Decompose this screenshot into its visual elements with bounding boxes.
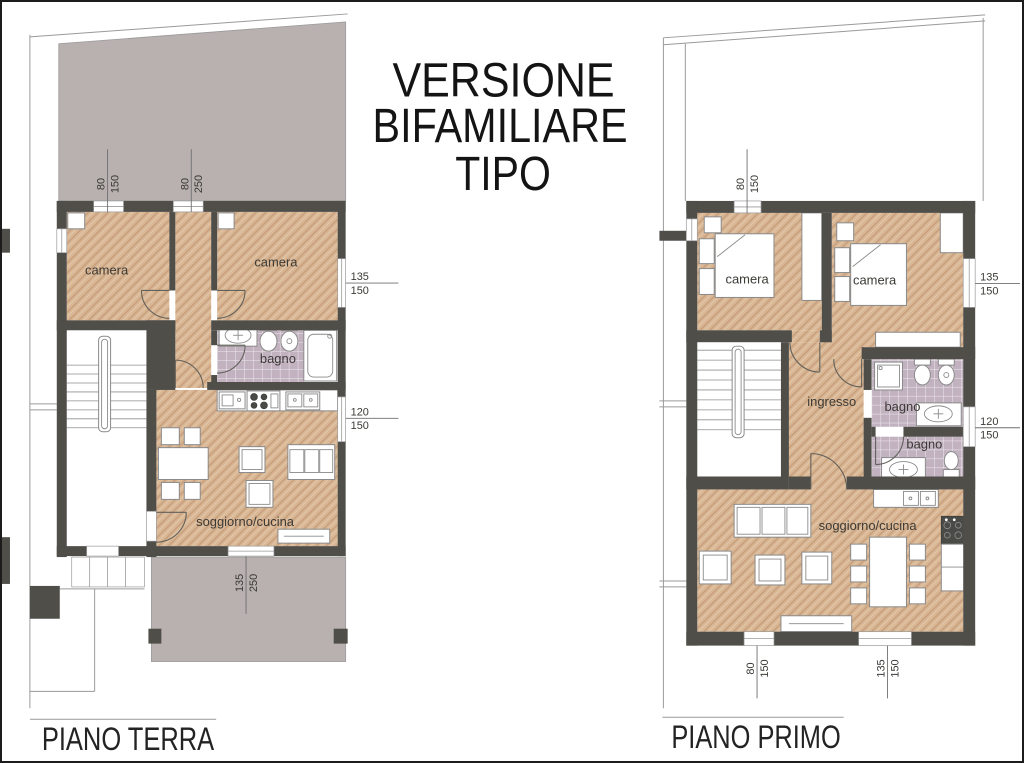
plan-label-piano-primo: PIANO PRIMO: [671, 718, 840, 755]
dimension-value: 150: [351, 285, 369, 297]
sink-icon: [916, 403, 961, 426]
dimension-value: 150: [110, 175, 122, 193]
dimension-value: 150: [749, 175, 761, 193]
dimension-value: 250: [193, 175, 205, 193]
nightstand-icon: [837, 223, 854, 241]
window: [338, 259, 346, 308]
title-block: VERSIONE BIFAMILIARE TIPO: [373, 55, 628, 201]
dimension: 120 150: [975, 416, 1020, 442]
kitchen-counter: [217, 390, 338, 411]
toilet-icon: [943, 452, 959, 478]
room-label-soggiorno: soggiorno/cucina: [196, 514, 295, 529]
neighbour-wall-stubs: [2, 229, 60, 619]
bidet-icon: [938, 359, 954, 385]
window: [859, 632, 912, 646]
sheet-title-line3: TIPO: [455, 148, 551, 201]
room-label-camera1: camera: [85, 263, 129, 278]
kitchen-counter: [941, 544, 965, 591]
dimension-value: 135: [980, 272, 998, 284]
dimension-value: 150: [889, 659, 901, 677]
terrace-top: [59, 22, 346, 201]
dimension-value: 150: [351, 420, 369, 432]
terrace-door: [228, 546, 274, 556]
dimension-value: 150: [980, 285, 998, 297]
tv-bench-icon: [781, 616, 852, 632]
dimension-value: 250: [248, 574, 260, 592]
armchair-icon: [755, 555, 785, 585]
armchair-icon: [246, 480, 273, 507]
window: [744, 632, 774, 646]
window: [338, 397, 346, 442]
room-label-bagno: bagno: [260, 351, 296, 366]
room-label-bagno1: bagno: [884, 399, 920, 414]
armchair-icon: [802, 552, 832, 584]
dimension-value: 120: [980, 416, 998, 428]
room-label-ingresso: ingresso: [807, 394, 856, 409]
stove-icon: [247, 391, 280, 411]
nightstand-icon: [704, 217, 721, 233]
bathtub-icon: [304, 330, 337, 381]
dimension-value: 80: [179, 178, 191, 190]
room-label-camera2: camera: [254, 255, 298, 270]
door-opening: [87, 546, 119, 556]
window: [173, 201, 203, 212]
wardrobe-icon: [940, 213, 963, 253]
kitchen-sink-icon: [219, 392, 245, 409]
shower-icon: [875, 362, 903, 390]
window: [686, 219, 697, 241]
appliance-icon: [286, 392, 320, 410]
dimension-value: 80: [745, 662, 757, 674]
tv-bench-icon: [278, 529, 330, 543]
stove-icon: [941, 516, 965, 544]
dining-table-icon: [870, 537, 907, 607]
sofa-icon: [288, 445, 335, 480]
dimension: 135 150: [975, 272, 1020, 298]
floorplan-sheet: camera camera bagno soggiorno/cucina 80 …: [0, 0, 1024, 763]
window: [963, 407, 975, 447]
plan-piano-terra: camera camera bagno soggiorno/cucina 80 …: [2, 14, 398, 757]
kitchen-counter: [874, 489, 939, 507]
floorplan-drawing: camera camera bagno soggiorno/cucina 80 …: [2, 2, 1022, 761]
dimension: 135 150: [876, 646, 902, 699]
dining-table-icon: [158, 448, 208, 480]
window: [734, 201, 761, 213]
dimension-value: 150: [759, 659, 771, 677]
terrace-bottom: [148, 557, 347, 661]
dimension-value: 135: [876, 659, 888, 677]
dimension: 120 150: [346, 406, 399, 432]
room-label-bagno2: bagno: [906, 437, 942, 452]
room-label-camera2: camera: [853, 273, 897, 288]
wardrobe-icon: [802, 213, 822, 301]
dimension-value: 135: [234, 574, 246, 592]
neighbour-wall-stub: [659, 231, 686, 241]
armchair-icon: [699, 551, 731, 584]
dimension-value: 80: [735, 178, 747, 190]
plan-label-piano-terra: PIANO TERRA: [42, 720, 214, 757]
room-label-soggiorno: soggiorno/cucina: [819, 518, 918, 533]
room-label-camera1: camera: [725, 272, 769, 287]
sofa-icon: [734, 504, 811, 537]
dimension-value: 150: [980, 430, 998, 442]
dimension-value: 120: [351, 406, 369, 418]
window: [57, 229, 67, 253]
sheet-title-line2: BIFAMILIARE: [373, 100, 628, 153]
window: [963, 259, 975, 308]
dimension-value: 80: [96, 178, 108, 190]
dimension-value: 135: [351, 271, 369, 283]
plan-piano-primo: camera camera ingresso bagno bagno soggi…: [659, 15, 1020, 755]
dimension: 135 150: [346, 271, 399, 297]
toilet-icon: [914, 359, 930, 385]
desk-icon: [876, 332, 961, 347]
window: [94, 201, 124, 212]
entry-landing: [72, 557, 145, 587]
stairs-icon: [697, 342, 781, 476]
armchair-icon: [239, 447, 265, 473]
dimension: 80 150: [745, 646, 771, 699]
stairs-icon: [67, 330, 147, 547]
